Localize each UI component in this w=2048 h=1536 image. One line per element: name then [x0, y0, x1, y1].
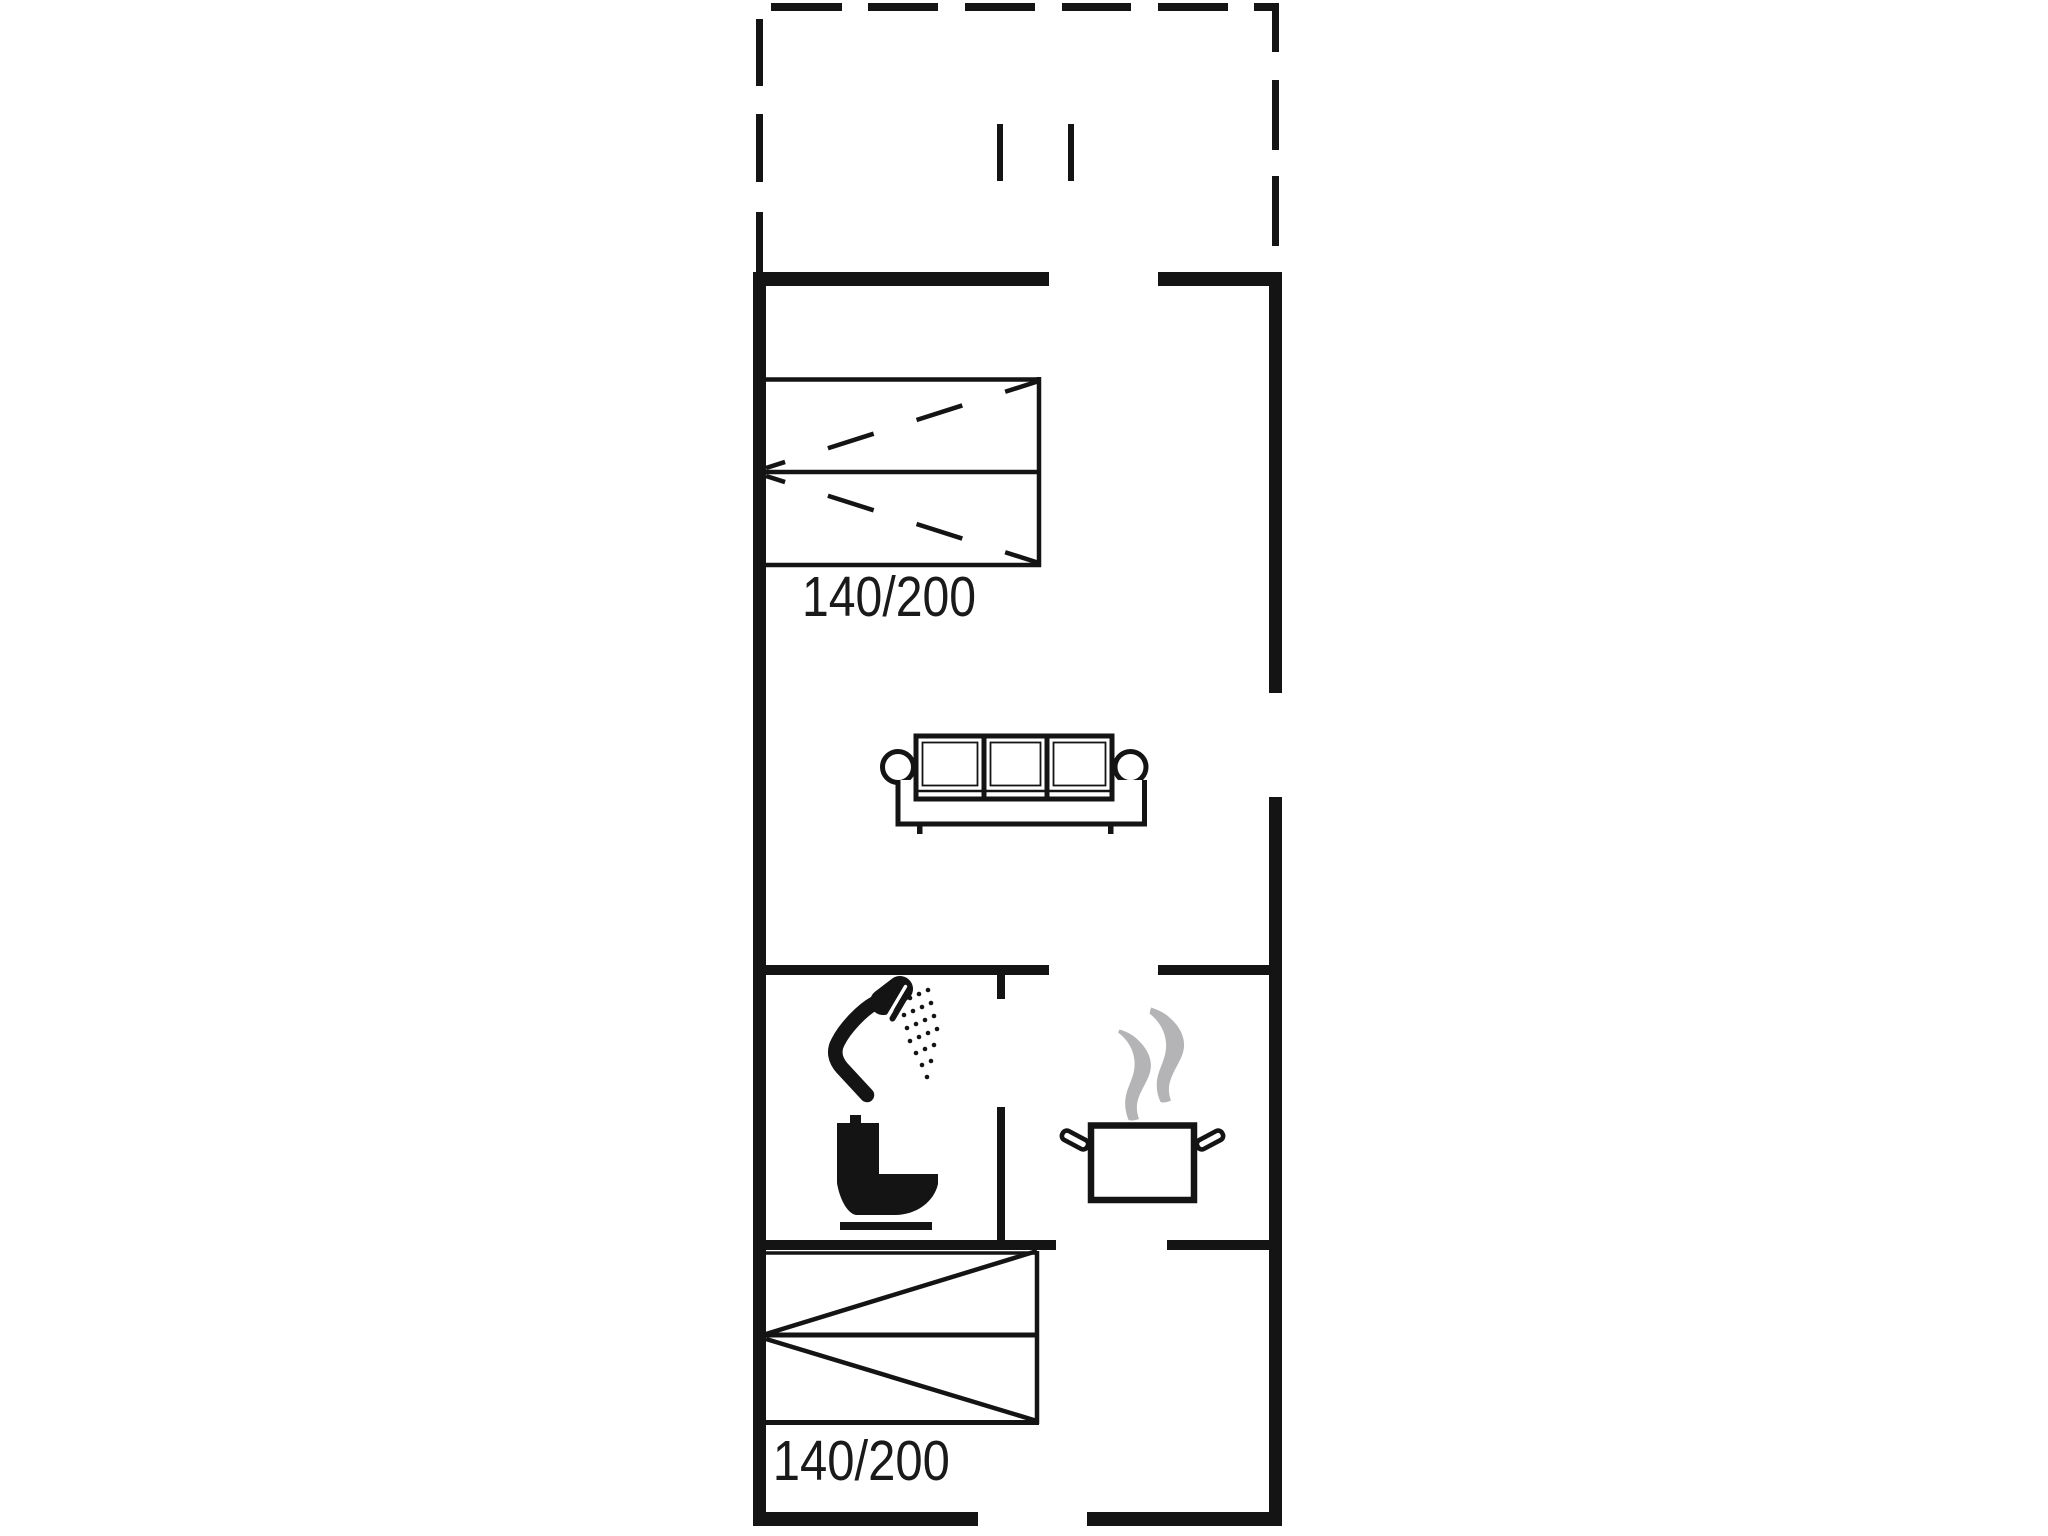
- svg-text:140/200: 140/200: [802, 565, 976, 629]
- svg-text:140/200: 140/200: [773, 1430, 950, 1493]
